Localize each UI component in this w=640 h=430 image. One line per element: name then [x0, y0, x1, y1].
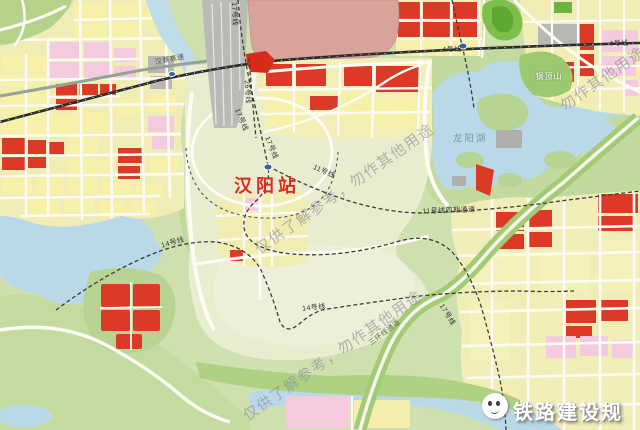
- brand-text: 铁路建设规划: [513, 396, 640, 430]
- metro-marker-icon: [169, 72, 176, 77]
- station-area-salmon: [248, 0, 399, 60]
- metro-marker-icon: [459, 43, 467, 49]
- metro-marker-icon: [264, 164, 272, 170]
- brand-logo-icon: [482, 393, 508, 419]
- map-artwork: [0, 0, 640, 430]
- map-canvas[interactable]: 汉阳站 龙阳湖 锅顶山 4号线 4号线 17号线 17号线 17号线 17号线 …: [0, 0, 640, 430]
